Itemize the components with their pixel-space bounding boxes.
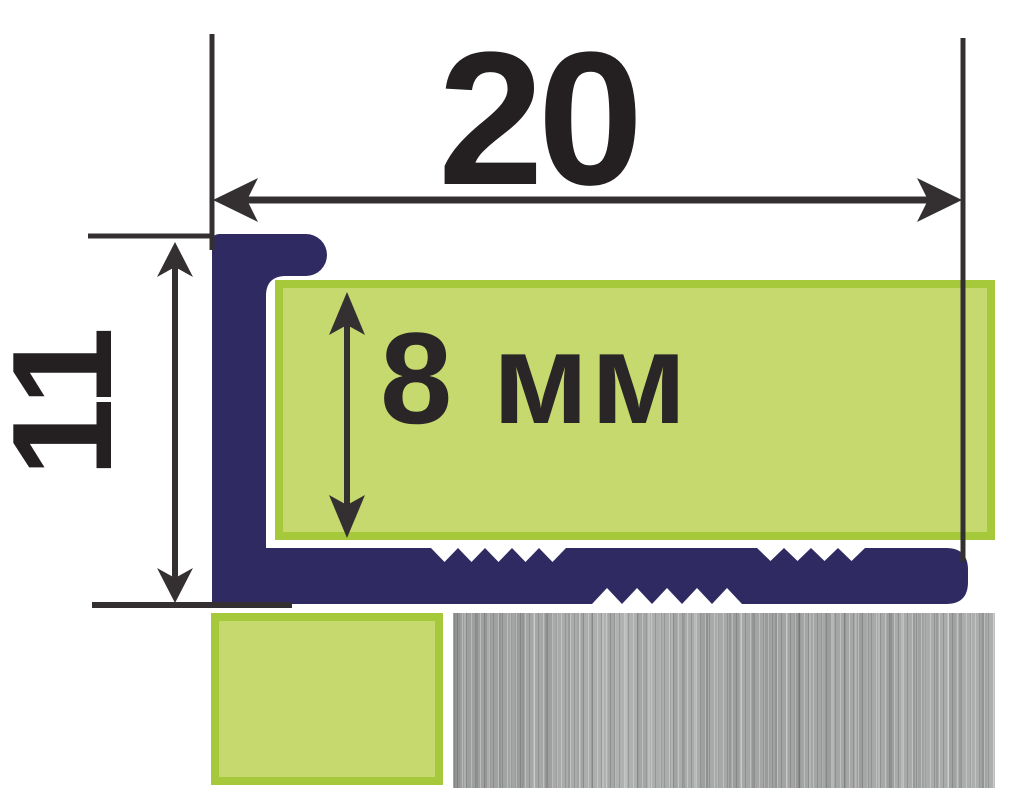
tile-thickness-label: 8 мм — [380, 313, 689, 443]
width-dimension-label: 20 — [438, 24, 637, 214]
green-color-swatch — [215, 617, 439, 781]
height-dimension-label: 11 — [0, 282, 133, 522]
aluminum-texture-swatch — [453, 613, 995, 788]
profile-dimension-diagram: 20 11 8 мм — [0, 0, 1024, 803]
